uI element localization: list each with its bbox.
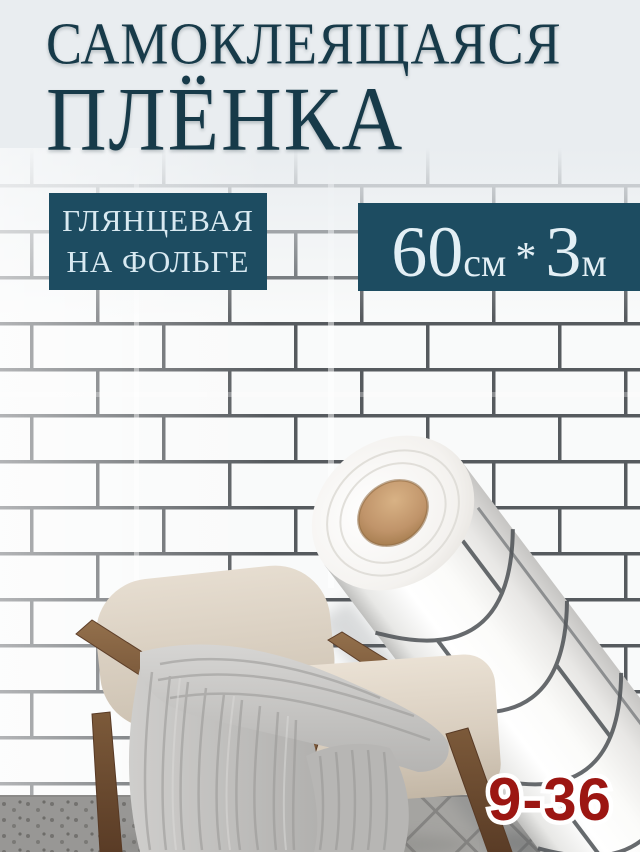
size-separator: * [515,237,536,279]
size-length-value: 3 [545,216,581,288]
size-badge: 60см*3м [358,203,640,291]
size-badge-text: 60см*3м [391,216,606,288]
finish-badge-line1: ГЛЯНЦЕВАЯ [62,201,254,242]
product-banner: 9-36 САМОКЛЕЯЩАЯСЯ ПЛЁНКА ГЛЯНЦЕВАЯ НА Ф… [0,0,640,852]
finish-badge-line2: НА ФОЛЬГЕ [67,242,250,283]
product-title: САМОКЛЕЯЩАЯСЯ ПЛЁНКА [46,14,562,159]
size-width-unit: см [463,243,506,283]
product-title-line2: ПЛЁНКА [46,75,562,166]
sku-label: 9-36 [488,766,612,833]
product-title-line1: САМОКЛЕЯЩАЯСЯ [46,14,562,75]
size-width-value: 60 [391,216,463,288]
size-length-unit: м [581,243,606,283]
finish-badge: ГЛЯНЦЕВАЯ НА ФОЛЬГЕ [49,193,267,290]
